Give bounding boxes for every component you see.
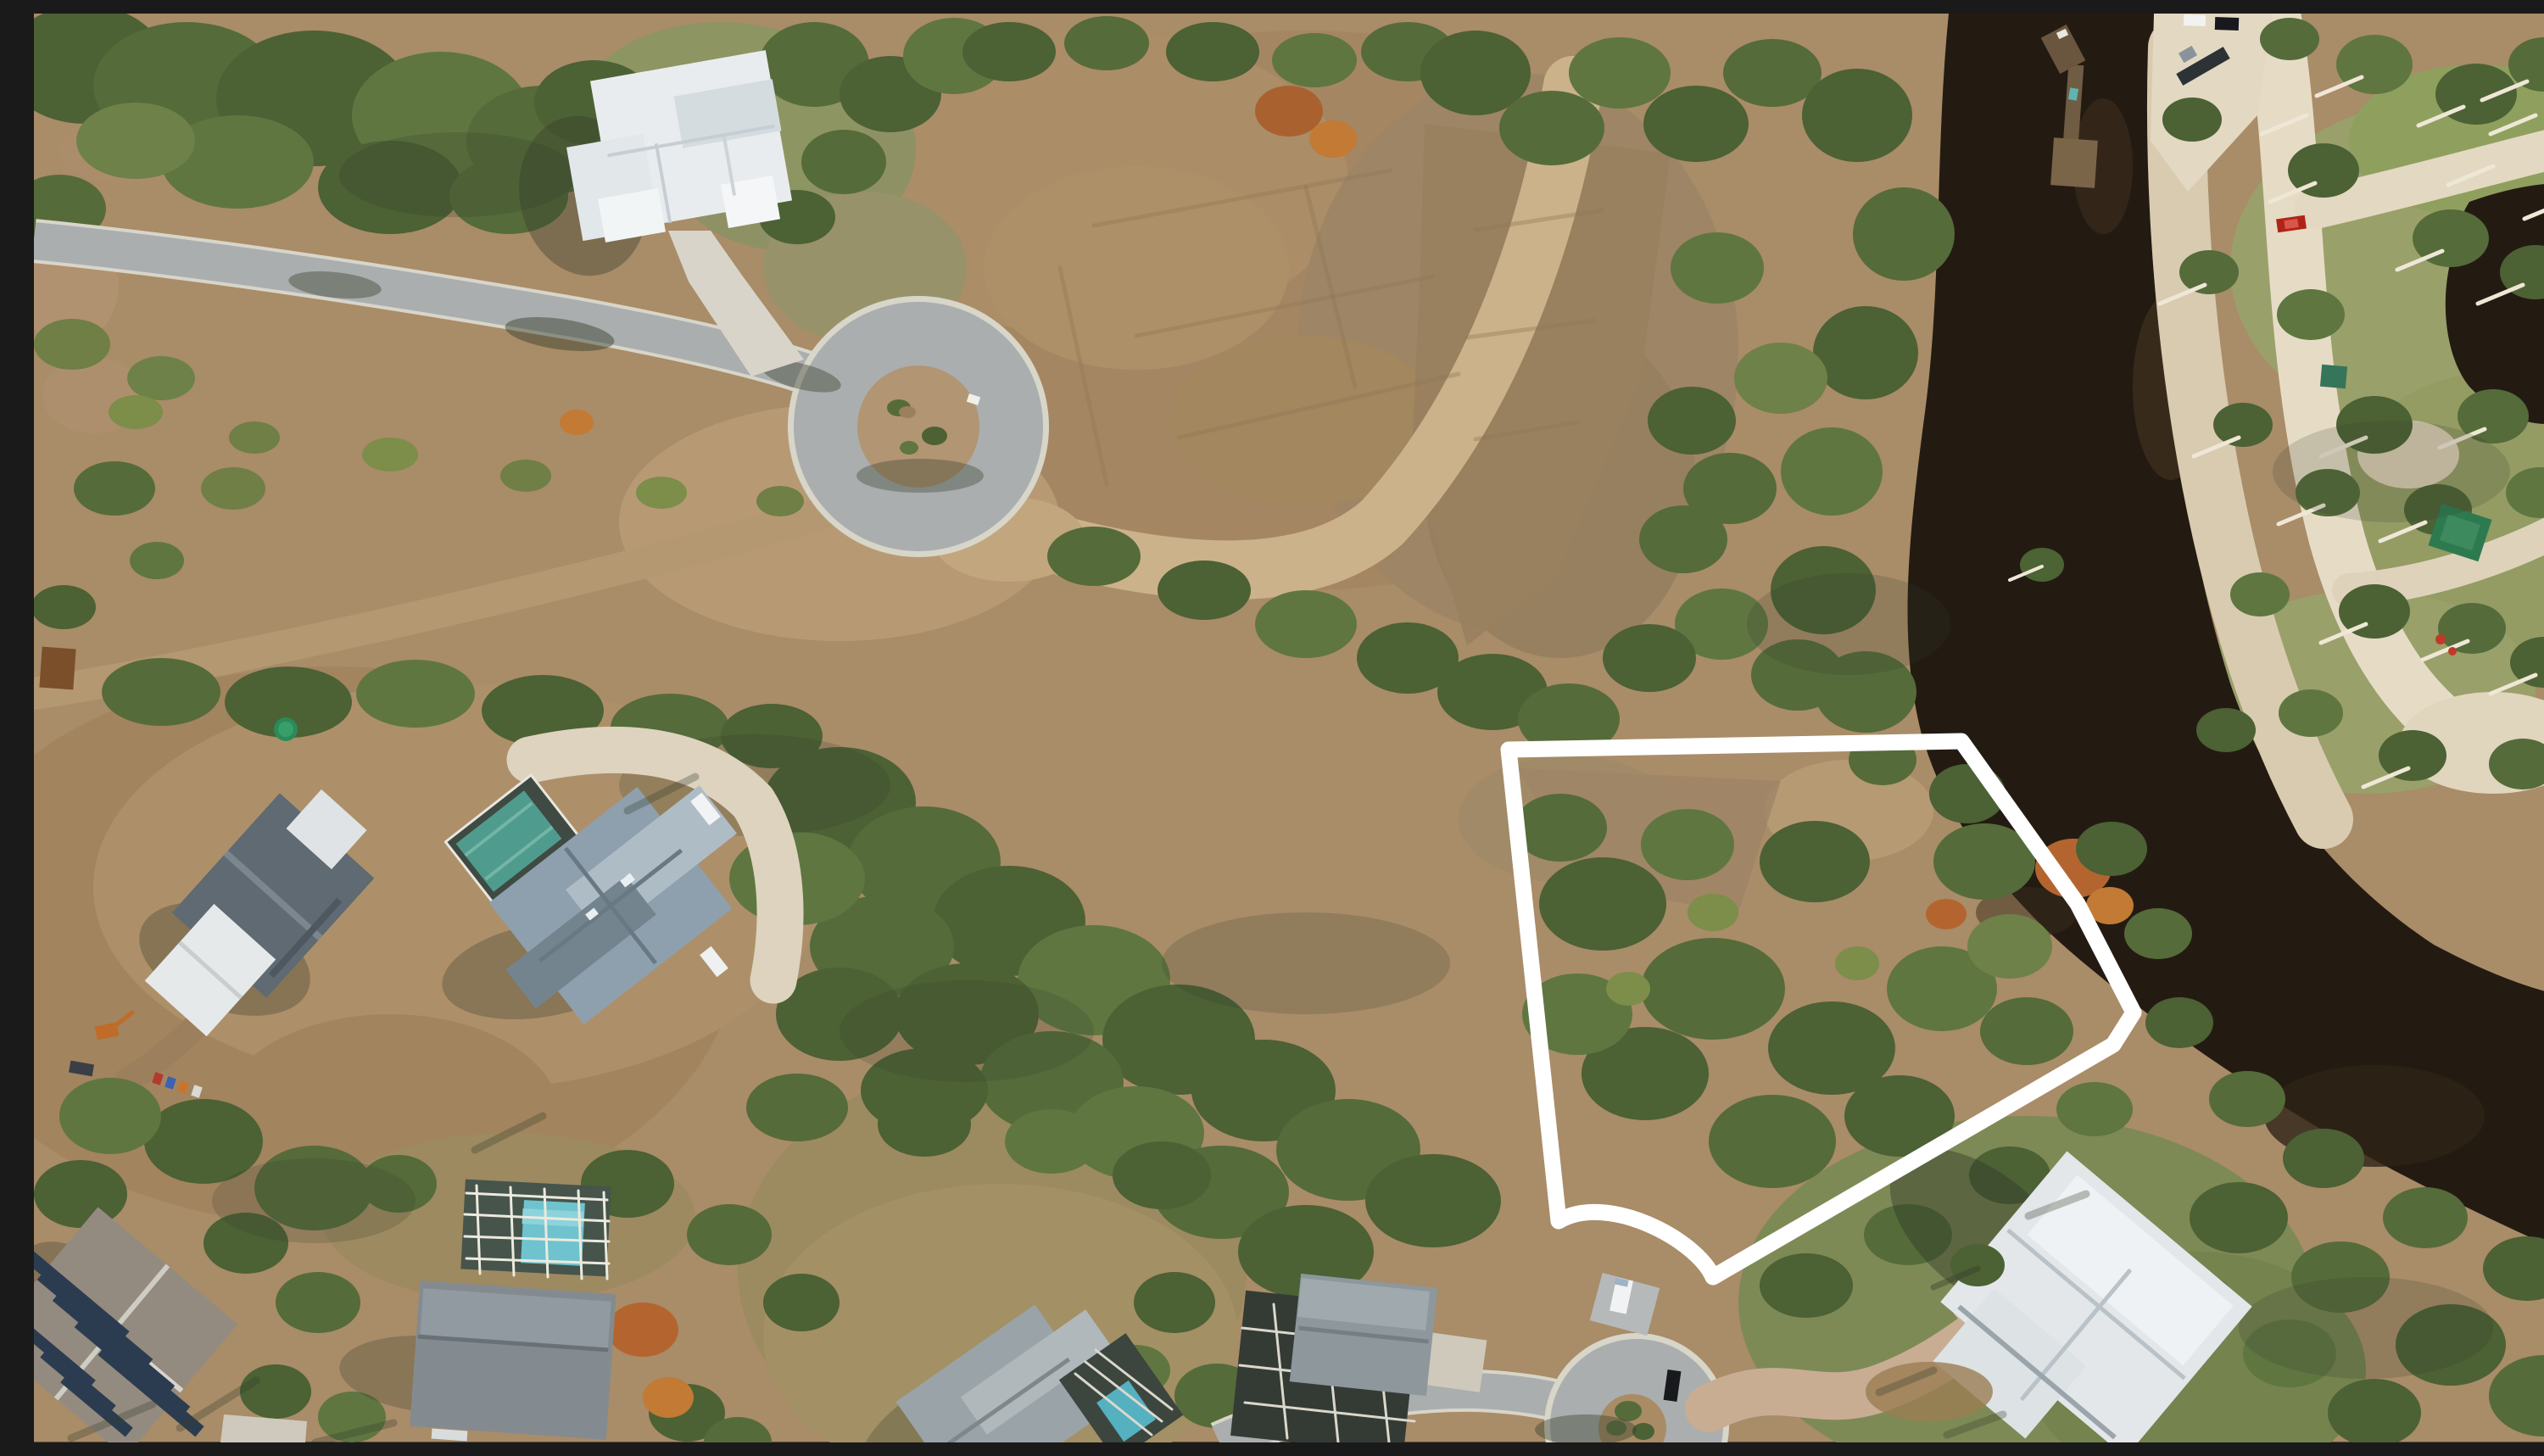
tree-canopy [76, 103, 195, 179]
tree-canopy [2076, 822, 2147, 876]
trampoline-mat [278, 722, 293, 737]
tree-canopy [2190, 1182, 2288, 1253]
road-tree-shadow [856, 459, 984, 493]
tree-canopy [34, 319, 110, 370]
aerial-photo [34, 14, 2544, 1442]
tree-canopy [687, 1204, 772, 1265]
tree-canopy [1641, 938, 1785, 1040]
park-palm [2279, 689, 2343, 737]
parked-car-white [2184, 14, 2206, 26]
tree-canopy [59, 1078, 161, 1154]
tree-canopy [1255, 590, 1357, 658]
tree-canopy [746, 1074, 848, 1141]
tree-canopy [74, 461, 155, 516]
tree-canopy [1853, 187, 1955, 281]
tree-canopy [1760, 821, 1870, 902]
island-shrubs [900, 441, 918, 455]
tree-canopy [1603, 624, 1696, 692]
tree-canopy [1641, 809, 1734, 880]
tree-canopy [1709, 1095, 1836, 1188]
park-palm [2213, 403, 2273, 447]
tree-canopy [201, 467, 265, 510]
island-shrubs [899, 406, 916, 418]
park-shelter [2320, 365, 2347, 389]
park-palm [2230, 572, 2290, 616]
canopy-shadow [2239, 1277, 2493, 1379]
tree-canopy [2145, 997, 2213, 1048]
tree-canopy [1926, 899, 1967, 929]
tree-canopy [1760, 1253, 1853, 1318]
palm-island [2020, 548, 2064, 582]
tree-canopy [276, 1272, 360, 1333]
tree-canopy [643, 1377, 694, 1418]
park-palm [2379, 730, 2446, 781]
tree-canopy [109, 395, 163, 429]
tree-canopy [2209, 1071, 2285, 1127]
tree-canopy [1835, 946, 1879, 980]
tree-canopy [102, 658, 220, 726]
tree-canopy [1255, 86, 1323, 137]
island-shrubs [922, 427, 947, 445]
tree-canopy [1064, 16, 1149, 70]
tree-canopy [2283, 1129, 2364, 1188]
tree-canopy [1134, 1272, 1215, 1333]
tree-canopy [362, 438, 418, 471]
parked-car-black [2215, 17, 2240, 31]
tree-canopy [130, 542, 184, 579]
tree-canopy [1734, 343, 1827, 414]
tree-canopy [1606, 972, 1650, 1006]
yard-palm [1950, 1244, 2005, 1286]
tree-canopy [607, 1303, 678, 1357]
canopy-shadow [1162, 912, 1450, 1014]
tree-canopy [1005, 1109, 1098, 1174]
park-palm [2196, 708, 2256, 752]
tree-canopy [756, 486, 804, 516]
dock-platform [2050, 137, 2098, 187]
tree-canopy [1683, 453, 1777, 524]
tree-canopy [34, 1160, 127, 1228]
park-palm [2179, 250, 2239, 294]
tree-canopy [229, 421, 280, 454]
tree-canopy [2124, 908, 2192, 959]
tree-canopy [1309, 120, 1357, 158]
tree-canopy [1272, 33, 1357, 87]
tree-canopy [127, 356, 195, 400]
tree-canopy [1813, 306, 1918, 399]
tree-canopy [1113, 1141, 1211, 1209]
tree-canopy [1166, 22, 1259, 81]
tree-canopy [2056, 1082, 2133, 1136]
tree-canopy [1688, 894, 1738, 931]
tree-canopy [763, 1274, 840, 1331]
tree-canopy [356, 660, 475, 728]
tree-canopy [801, 130, 886, 194]
tree-canopy [1047, 527, 1141, 586]
park-palm [2260, 18, 2319, 60]
shed [39, 647, 75, 690]
tree-canopy [34, 585, 96, 629]
tree-canopy [1514, 794, 1607, 862]
tree-canopy [1781, 427, 1883, 516]
tree-canopy [1802, 69, 1912, 162]
tree-canopy [500, 460, 551, 492]
tree-canopy [1158, 561, 1251, 620]
park-palm [2438, 603, 2506, 654]
tree-canopy [878, 1092, 971, 1157]
canopy-shadow [212, 1158, 416, 1243]
tree-canopy [1671, 232, 1764, 304]
picnic-item-red2 [2448, 647, 2457, 655]
tree-canopy [1643, 86, 1749, 162]
tree-canopy [636, 477, 687, 509]
tree-canopy [962, 22, 1056, 81]
canopy-shadow [1747, 573, 1950, 675]
picnic-item-red [2435, 634, 2446, 644]
tree-canopy [1967, 914, 2052, 979]
tree-canopy [1569, 37, 1671, 109]
roof-garage [721, 176, 780, 228]
tree-canopy [1365, 1154, 1501, 1247]
canopy-shadow [2273, 421, 2510, 522]
southeast-inner-house [1230, 1274, 1437, 1442]
canopy-shadow [840, 980, 1094, 1082]
tree-canopy [1539, 857, 1666, 951]
park-palm [2162, 98, 2222, 142]
tree-canopy [240, 1364, 311, 1419]
tree-canopy [560, 410, 594, 435]
tree-canopy [2383, 1187, 2468, 1248]
tree-canopy [1980, 997, 2073, 1065]
tree-canopy [1499, 91, 1604, 165]
tree-canopy [1648, 387, 1736, 455]
aerial-photo-frame: Aerial drone photograph of a wooded coas… [34, 14, 2544, 1442]
park-palm [2277, 289, 2345, 340]
